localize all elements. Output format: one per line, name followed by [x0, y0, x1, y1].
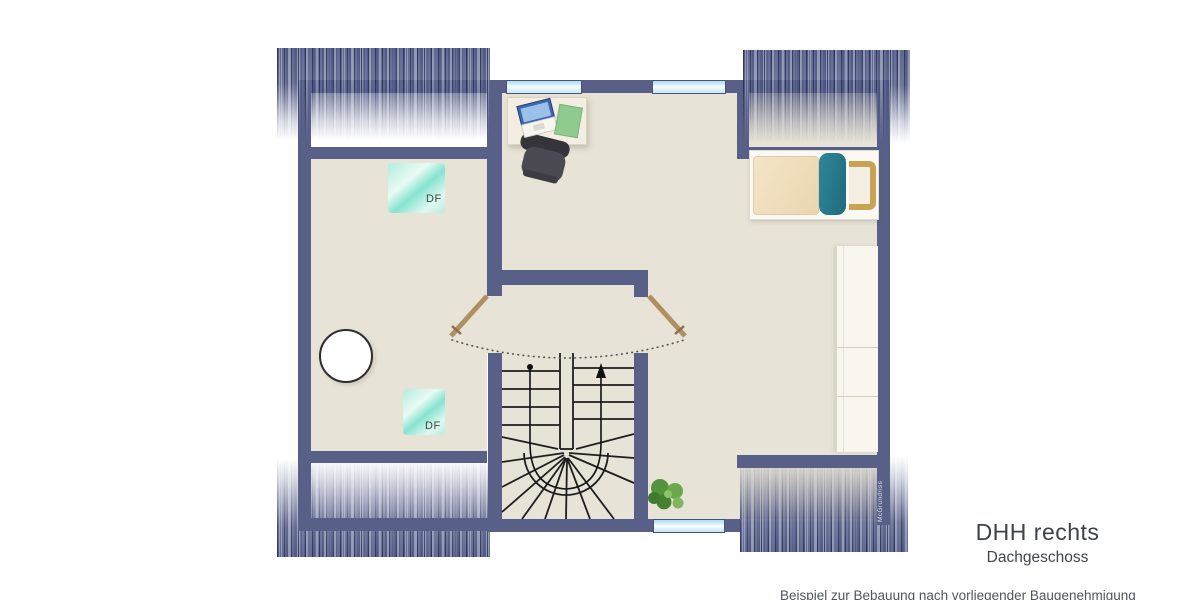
watermark-text: McGrundriss — [877, 468, 884, 522]
plan-title: DHH rechts — [950, 519, 1125, 546]
door-swing-arc — [452, 340, 684, 358]
skylight-label-2: DF — [425, 420, 441, 432]
plan-caption: Beispiel zur Bebauung nach vorliegender … — [780, 588, 1136, 600]
laptop — [517, 98, 558, 137]
plan-subtitle: Dachgeschoss — [950, 549, 1125, 567]
skylight-label-1: DF — [426, 193, 442, 205]
staircase — [502, 353, 634, 519]
floorplan-canvas: DF DF — [0, 0, 1200, 600]
notepad — [555, 104, 583, 138]
door-leaf-right — [649, 296, 685, 336]
plan-title-block: DHH rechts Dachgeschoss — [950, 519, 1125, 567]
office-chair — [512, 131, 571, 185]
plan-overlay-graphics — [0, 0, 1200, 600]
plant — [648, 479, 684, 510]
door-leaf-left — [451, 296, 487, 336]
